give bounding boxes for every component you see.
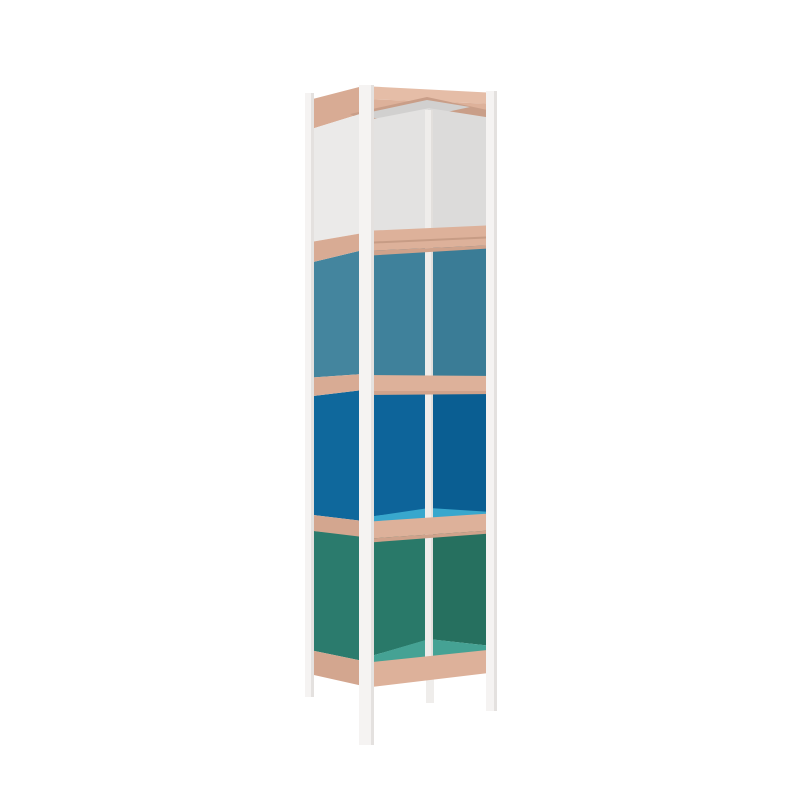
tier4-back-right-panel [428, 524, 492, 646]
tier4-back-left-panel [368, 531, 430, 657]
tier1-back-right-panel [428, 108, 492, 246]
right-post-shade [494, 91, 497, 711]
tier2-back-right-panel [428, 236, 492, 390]
tier2-back-left-panel [368, 243, 430, 392]
shelf2-front-edge [363, 375, 497, 391]
product-render-canvas [0, 0, 800, 800]
front-post-shade [371, 85, 374, 745]
left-rear-post-shade [311, 93, 314, 697]
tier3-back-left-panel [368, 390, 430, 517]
tier3-back-right-panel [428, 387, 492, 513]
back-leg [426, 679, 434, 703]
shelf-unit-render [0, 0, 800, 800]
